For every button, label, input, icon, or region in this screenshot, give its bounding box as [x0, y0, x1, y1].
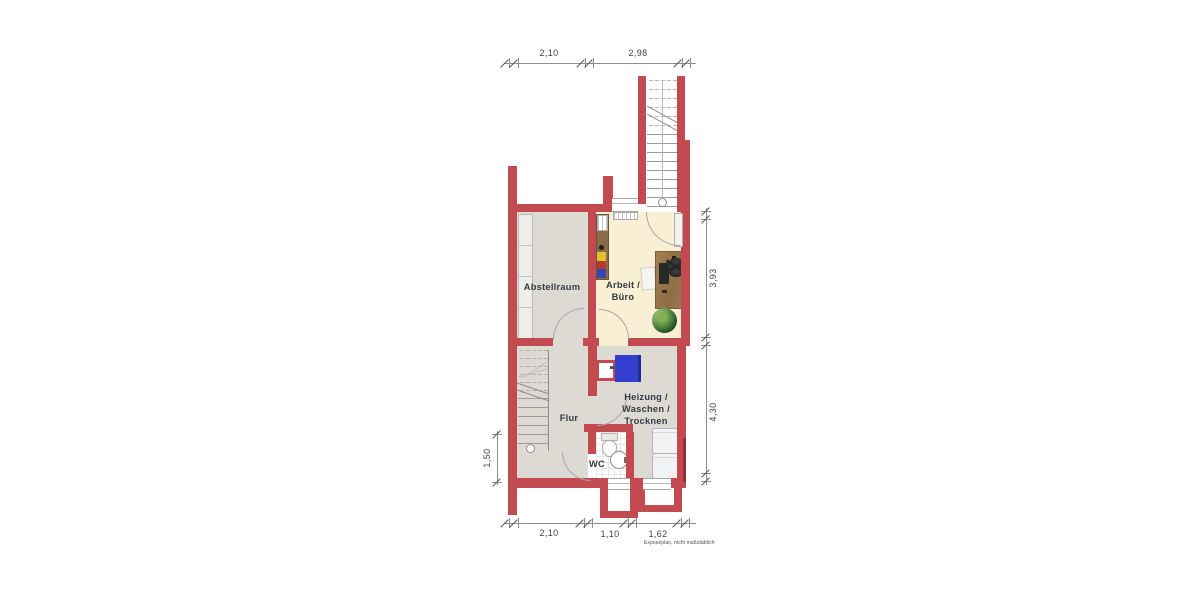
dimension-tick [701, 473, 711, 474]
storage-shelf [518, 214, 533, 340]
room-label-flur: Flur [560, 412, 579, 424]
dimension-line-right [706, 208, 707, 485]
room-label-heizung: Heizung / Waschen / Trocknen [622, 391, 670, 427]
dimension-tick [689, 518, 690, 528]
dimension-tick [636, 518, 637, 528]
dimension-tick [492, 482, 502, 483]
dimension-label: 2,98 [628, 48, 647, 58]
shelf-striped-box [597, 215, 608, 231]
dimension-label: 2,10 [539, 528, 558, 538]
boiler-tab [638, 364, 641, 372]
wall [630, 478, 643, 488]
dimension-line-bottom [504, 523, 696, 524]
dimension-label: 1,10 [600, 529, 619, 539]
radiator [613, 212, 638, 220]
dimension-label: 4,30 [708, 402, 718, 421]
floor-door-opening [553, 338, 583, 346]
dimension-tick [701, 481, 711, 482]
wall [677, 140, 690, 212]
wall [508, 338, 553, 346]
watermark-strip [683, 438, 686, 482]
floor-plan: 2,10 2,98 2,10 1,10 1,62 3,93 4,30 1,50 … [0, 0, 1200, 600]
window [608, 478, 630, 490]
dimension-tick [701, 337, 711, 338]
entry-door-element [612, 198, 638, 212]
dimension-label: 2,10 [539, 48, 558, 58]
shelf-box-blue [597, 269, 606, 278]
wall [588, 212, 596, 338]
flue-box [596, 360, 616, 381]
staircase-newel-circle [658, 198, 667, 207]
window [643, 478, 671, 490]
staircase-newel-circle [526, 444, 535, 453]
wall [583, 338, 599, 346]
shelf-item-dark [599, 245, 604, 250]
wall [588, 346, 597, 396]
wall [508, 204, 612, 212]
disclaimer-text: Exposéplan, nicht maßstäblich [644, 540, 715, 546]
wall [638, 76, 646, 204]
washing-machine [652, 428, 679, 454]
dimension-label: 3,93 [708, 268, 718, 287]
floor-door-opening [599, 338, 628, 346]
dimension-tick [701, 345, 711, 346]
wall [626, 432, 634, 480]
dimension-tick [518, 58, 519, 68]
shelf-box-yellow [597, 252, 606, 261]
dimension-tick [690, 58, 691, 68]
dimension-tick [592, 518, 593, 528]
shelf-box-red [597, 261, 606, 269]
plant [652, 308, 677, 333]
room-label-abstellraum: Abstellraum [524, 281, 580, 293]
dimension-tick [518, 518, 519, 528]
wall [674, 488, 682, 512]
wall [588, 432, 596, 454]
desk-item [662, 290, 667, 293]
dimension-tick [492, 434, 502, 435]
staircase-walkline [662, 80, 663, 202]
room-label-wc: WC [589, 458, 605, 470]
room-label-arbeit-buero: Arbeit / Büro [606, 279, 640, 303]
dimension-tick [593, 58, 594, 68]
dryer [652, 453, 679, 479]
dimension-tick [701, 211, 711, 212]
floor-door-opening [588, 396, 597, 424]
staircase-edge-line [548, 350, 549, 451]
wall [677, 76, 685, 140]
dimension-line-top [504, 63, 696, 64]
dimension-tick [701, 219, 711, 220]
wall [516, 478, 608, 488]
dimension-line-left [497, 431, 498, 485]
dimension-label: 1,50 [482, 448, 492, 467]
dimension-label: 1,62 [648, 529, 667, 539]
